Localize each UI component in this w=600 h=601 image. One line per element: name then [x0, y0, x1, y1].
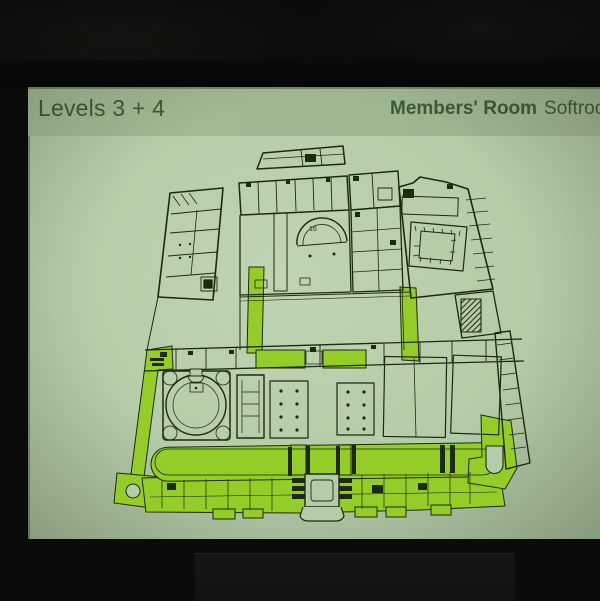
room-darkness	[0, 60, 600, 88]
projected-slide: Levels 3 + 4 Members' RoomSoftroom	[28, 87, 600, 539]
slide-title: Levels 3 + 4	[38, 95, 165, 122]
lectern-panel	[195, 553, 515, 601]
photo-of-projected-slide: { "meta": { "scene": "Photograph of a pr…	[0, 0, 600, 600]
credit-architect-name: Softroom	[544, 98, 600, 119]
slide-header-band: Levels 3 + 4 Members' RoomSoftroom	[28, 87, 600, 136]
credit-room-name: Members' Room	[390, 98, 537, 119]
slide-credit: Members' RoomSoftroom	[390, 98, 600, 120]
